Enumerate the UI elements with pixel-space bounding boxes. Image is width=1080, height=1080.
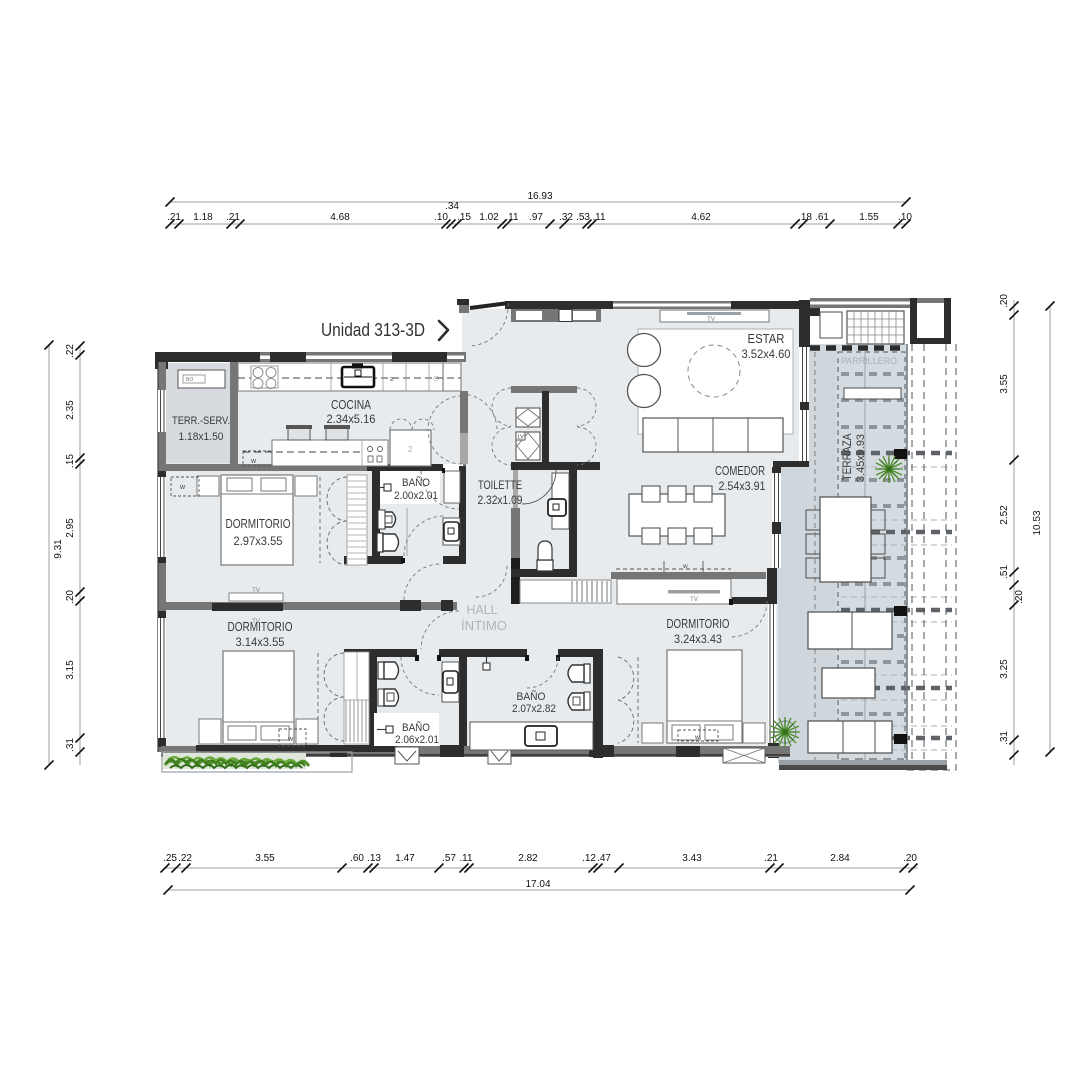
svg-text:w: w xyxy=(682,563,688,570)
svg-text:.21: .21 xyxy=(167,212,181,223)
svg-text:☉: ☉ xyxy=(433,375,439,383)
svg-text:BO: BO xyxy=(186,377,193,383)
svg-text:16.93: 16.93 xyxy=(527,191,552,202)
svg-text:.57: .57 xyxy=(442,853,456,864)
svg-text:TOILETTE: TOILETTE xyxy=(478,478,522,492)
svg-text:.60: .60 xyxy=(350,853,364,864)
svg-text:.22: .22 xyxy=(178,853,192,864)
svg-text:.20: .20 xyxy=(903,853,917,864)
svg-text:.18: .18 xyxy=(798,212,812,223)
svg-text:w: w xyxy=(287,736,294,743)
svg-text:.12: .12 xyxy=(582,853,596,864)
svg-text:3.25: 3.25 xyxy=(999,659,1010,679)
svg-text:.53: .53 xyxy=(576,212,590,223)
svg-text:DORMITORIO: DORMITORIO xyxy=(228,619,293,634)
svg-text:2.84: 2.84 xyxy=(830,853,850,864)
svg-text:.15: .15 xyxy=(457,212,471,223)
svg-text:2.95: 2.95 xyxy=(65,518,76,538)
svg-text:17.04: 17.04 xyxy=(525,879,550,890)
svg-text:3.24x3.43: 3.24x3.43 xyxy=(674,632,722,646)
svg-text:3.15: 3.15 xyxy=(65,660,76,680)
svg-text:PARRILLERO: PARRILLERO xyxy=(841,356,897,366)
svg-text:2.07x2.82: 2.07x2.82 xyxy=(512,703,556,715)
svg-text:LV: LV xyxy=(518,435,525,441)
svg-text:BAÑO: BAÑO xyxy=(517,690,546,703)
svg-text:2.35: 2.35 xyxy=(65,400,76,420)
svg-text:1.55: 1.55 xyxy=(859,212,879,223)
svg-text:.97: .97 xyxy=(529,212,543,223)
svg-text:.34: .34 xyxy=(445,201,459,212)
svg-text:COCINA: COCINA xyxy=(331,397,371,412)
svg-text:9.31: 9.31 xyxy=(53,539,64,559)
svg-text:3.43: 3.43 xyxy=(682,853,702,864)
svg-text:ESTAR: ESTAR xyxy=(748,331,785,346)
svg-text:.61: .61 xyxy=(815,212,829,223)
svg-text:2.82: 2.82 xyxy=(518,853,538,864)
svg-text:w: w xyxy=(694,734,700,741)
svg-text:.32: .32 xyxy=(559,212,573,223)
svg-text:w: w xyxy=(179,484,186,491)
svg-text:4.62: 4.62 xyxy=(691,212,711,223)
svg-text:3.14x3.55: 3.14x3.55 xyxy=(236,635,285,649)
svg-text:1.02: 1.02 xyxy=(479,212,499,223)
svg-text:2.32x1.09: 2.32x1.09 xyxy=(478,493,523,507)
svg-text:.51: .51 xyxy=(999,565,1010,579)
svg-text:10.53: 10.53 xyxy=(1032,510,1043,535)
svg-text:TV: TV xyxy=(707,317,715,323)
svg-text:TV: TV xyxy=(690,597,698,603)
svg-text:.21: .21 xyxy=(226,212,240,223)
svg-text:DORMITORIO: DORMITORIO xyxy=(667,616,730,631)
svg-text:2.00x2.01: 2.00x2.01 xyxy=(394,490,438,502)
svg-text:.25: .25 xyxy=(163,853,177,864)
svg-text:TERRAZA: TERRAZA xyxy=(840,434,854,481)
svg-text:TV: TV xyxy=(252,588,260,594)
svg-text:3.52x4.60: 3.52x4.60 xyxy=(742,347,791,361)
svg-text:.47: .47 xyxy=(597,853,611,864)
svg-text:3.55: 3.55 xyxy=(999,374,1010,394)
svg-text:.11: .11 xyxy=(505,212,519,223)
svg-text:.11: .11 xyxy=(459,853,473,864)
svg-text:HALL: HALL xyxy=(467,602,498,617)
svg-text:2.54x3.91: 2.54x3.91 xyxy=(719,479,766,493)
svg-text:4.68: 4.68 xyxy=(330,212,350,223)
svg-text:.11: .11 xyxy=(592,212,606,223)
svg-text:.15: .15 xyxy=(65,454,76,468)
svg-text:.10: .10 xyxy=(898,212,912,223)
svg-text:BAÑO: BAÑO xyxy=(402,476,430,489)
svg-text:BAÑO: BAÑO xyxy=(402,721,430,734)
svg-text:≥: ≥ xyxy=(390,376,394,383)
svg-text:2.06x2.01: 2.06x2.01 xyxy=(395,734,439,746)
svg-text:.20: .20 xyxy=(1014,590,1025,604)
svg-text:.31: .31 xyxy=(999,731,1010,745)
svg-text:.10: .10 xyxy=(434,212,448,223)
svg-text:.21: .21 xyxy=(764,853,778,864)
svg-text:2.34x5.16: 2.34x5.16 xyxy=(327,412,376,426)
svg-text:.20: .20 xyxy=(999,294,1010,308)
svg-text:.20: .20 xyxy=(65,590,76,604)
svg-text:TERR.-SERV.: TERR.-SERV. xyxy=(172,415,230,427)
svg-text:ÍNTIMO: ÍNTIMO xyxy=(461,618,507,633)
svg-text:2: 2 xyxy=(408,445,413,454)
svg-text:3.45x9.93: 3.45x9.93 xyxy=(855,434,867,482)
svg-text:Unidad 313-3D: Unidad 313-3D xyxy=(321,320,425,340)
svg-text:1.18x1.50: 1.18x1.50 xyxy=(179,431,224,443)
svg-text:1.47: 1.47 xyxy=(395,853,415,864)
svg-text:w: w xyxy=(250,458,257,465)
svg-text:1.18: 1.18 xyxy=(193,212,213,223)
svg-text:.22: .22 xyxy=(65,344,76,358)
svg-text:.13: .13 xyxy=(367,853,381,864)
svg-text:DORMITORIO: DORMITORIO xyxy=(226,516,291,531)
svg-text:2.97x3.55: 2.97x3.55 xyxy=(234,534,283,548)
svg-text:COMEDOR: COMEDOR xyxy=(715,463,765,478)
svg-text:3.55: 3.55 xyxy=(255,853,275,864)
svg-text:.31: .31 xyxy=(65,738,76,752)
svg-text:2.52: 2.52 xyxy=(999,505,1010,525)
